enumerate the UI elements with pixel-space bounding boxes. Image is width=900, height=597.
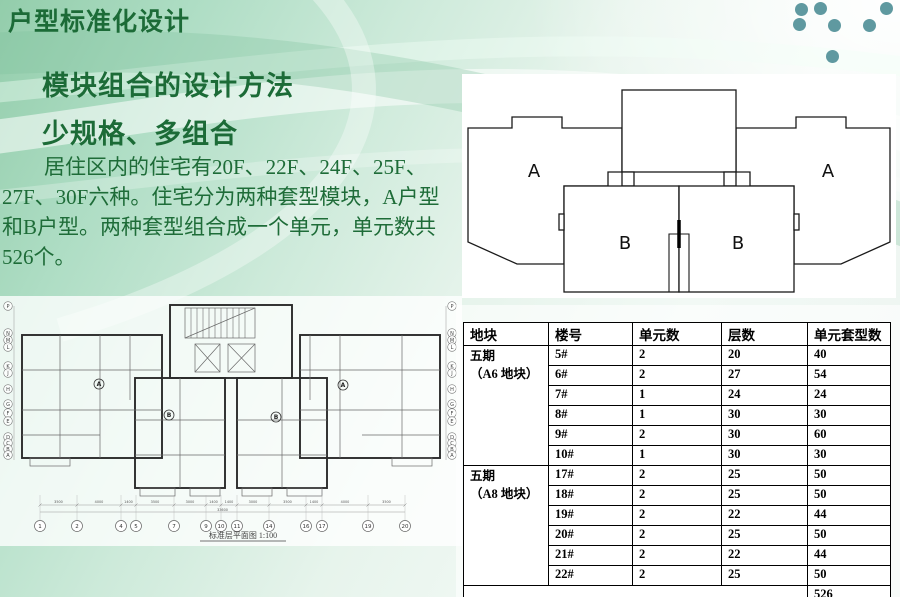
table-cell: 24 xyxy=(722,386,808,406)
grid-axis-letter: E xyxy=(450,419,453,425)
table-header-cell: 单元套型数 xyxy=(808,323,891,346)
grid-axis-number: 1 xyxy=(38,524,42,530)
dimension-lines: 3500400014003500300014001400300035001400… xyxy=(39,500,407,512)
table-cell: 18# xyxy=(549,486,633,506)
dimension-label: 1400 xyxy=(225,500,234,504)
units-table: 地块楼号单元数层数单元套型数 五期（A6 地块）5#220406#227547#… xyxy=(463,322,891,597)
table-cell: 44 xyxy=(808,546,891,566)
table-cell: 50 xyxy=(808,466,891,486)
page-title: 户型标准化设计 xyxy=(8,2,190,38)
dimension-label: 3000 xyxy=(186,500,195,504)
table-cell: 50 xyxy=(808,526,891,546)
table-cell: 21# xyxy=(549,546,633,566)
grid-axis-letter: G xyxy=(6,402,10,408)
total-row-empty-cell xyxy=(464,586,808,597)
dot-icon xyxy=(828,19,841,32)
unit-marker-label: A xyxy=(97,381,102,388)
core-block-outline xyxy=(622,90,736,172)
dimension-label: 1400 xyxy=(124,500,133,504)
dimension-label: 3500 xyxy=(151,500,160,504)
subtitle-slogan: 少规格、多组合 xyxy=(42,112,238,151)
table-cell: 2 xyxy=(633,426,722,446)
building-outline-panel: A A B B xyxy=(462,74,896,298)
table-cell: 50 xyxy=(808,486,891,506)
grid-axis-letter: A xyxy=(6,453,10,459)
dimension-label: 4000 xyxy=(341,500,350,504)
plan-core xyxy=(170,305,292,378)
grid-axis-letter: J xyxy=(6,371,8,377)
dimension-label: 3500 xyxy=(382,500,391,504)
grid-axis-letter: H xyxy=(6,387,10,393)
units-table-head-row: 地块楼号单元数层数单元套型数 xyxy=(464,323,891,346)
table-cell: 6# xyxy=(549,366,633,386)
stair-hatch xyxy=(191,308,245,338)
building-outline-diagram: A A B B xyxy=(462,74,896,298)
core-foot-right xyxy=(724,172,736,186)
grid-axis-letter: H xyxy=(450,387,454,393)
dimension-label: 3500 xyxy=(54,500,63,504)
table-cell: 30 xyxy=(808,406,891,426)
dot-icon xyxy=(863,19,876,32)
grid-axis-letter: G xyxy=(450,402,454,408)
table-cell: 40 xyxy=(808,346,891,366)
unit-label-a-right: A xyxy=(822,161,835,182)
grid-axis-number: 19 xyxy=(365,524,372,530)
table-cell: 22# xyxy=(549,566,633,586)
table-row: 五期（A6 地块）5#22040 xyxy=(464,346,891,366)
grid-axis-letter: E xyxy=(6,419,9,425)
grid-axis-number: 9 xyxy=(204,524,208,530)
dimension-label: 1400 xyxy=(209,500,218,504)
grid-axis-numbers: 12457910111416171920 xyxy=(35,495,411,532)
table-cell: 10# xyxy=(549,446,633,466)
table-cell: 1 xyxy=(633,406,722,426)
plan-left-wing xyxy=(22,335,162,458)
table-cell: 25 xyxy=(722,526,808,546)
table-cell: 1 xyxy=(633,446,722,466)
table-header-cell: 地块 xyxy=(464,323,549,346)
grid-axis-number: 4 xyxy=(119,524,123,530)
grid-axis-letters: PNMLKJHGFEDCBAPNMLKJHGFEDCBA xyxy=(4,302,457,460)
table-cell: 50 xyxy=(808,566,891,586)
grid-axis-number: 11 xyxy=(234,524,241,530)
table-cell: 1 xyxy=(633,386,722,406)
dot-icon xyxy=(880,2,893,15)
plan-right-wing xyxy=(300,335,440,458)
unit-marker-label: A xyxy=(341,382,346,389)
floorplan-drawing: ABBA 35004000140035003000140014003000350… xyxy=(0,300,462,545)
grid-axis-letter: F xyxy=(451,411,454,417)
grid-axis-number: 10 xyxy=(218,524,225,530)
table-total-row: 526 xyxy=(464,586,891,597)
table-cell: 22 xyxy=(722,546,808,566)
unit-b-right-notch xyxy=(794,214,799,230)
total-units-cell: 526 xyxy=(808,586,891,597)
table-cell: 30 xyxy=(722,426,808,446)
grid-axis-number: 20 xyxy=(402,524,409,530)
grid-axis-number: 5 xyxy=(134,524,138,530)
core-foot-left xyxy=(622,172,634,186)
grid-axis-letter: J xyxy=(450,371,452,377)
table-cell: 24 xyxy=(808,386,891,406)
table-cell: 2 xyxy=(633,346,722,366)
table-cell: 19# xyxy=(549,506,633,526)
table-cell: 2 xyxy=(633,506,722,526)
table-cell: 2 xyxy=(633,466,722,486)
table-cell: 25 xyxy=(722,566,808,586)
grid-axis-letter: P xyxy=(450,304,453,310)
table-cell: 20 xyxy=(722,346,808,366)
grid-axis-letter: A xyxy=(450,453,454,459)
table-cell: 30 xyxy=(808,446,891,466)
table-cell: 27 xyxy=(722,366,808,386)
dot-icon xyxy=(814,2,827,15)
dimension-label: 3500 xyxy=(283,500,292,504)
dimension-label: 4000 xyxy=(95,500,104,504)
unit-b-left-notch xyxy=(559,214,564,230)
total-dimension-label: 33600 xyxy=(217,508,228,512)
dot-icon xyxy=(826,50,839,63)
table-cell: 60 xyxy=(808,426,891,446)
unit-label-b-left: B xyxy=(619,233,631,254)
grid-axis-number: 2 xyxy=(75,524,79,530)
grid-axis-number: 7 xyxy=(172,524,176,530)
table-header-cell: 单元数 xyxy=(633,323,722,346)
table-cell: 9# xyxy=(549,426,633,446)
dimension-label: 1400 xyxy=(310,500,319,504)
floorplan-caption: 标准层平面图 1:100 xyxy=(209,530,277,540)
block-label-cell: 五期（A8 地块） xyxy=(464,466,549,586)
table-cell: 25 xyxy=(722,486,808,506)
table-cell: 7# xyxy=(549,386,633,406)
table-cell: 2 xyxy=(633,546,722,566)
table-cell: 25 xyxy=(722,466,808,486)
table-cell: 8# xyxy=(549,406,633,426)
table-cell: 20# xyxy=(549,526,633,546)
table-header-cell: 楼号 xyxy=(549,323,633,346)
grid-axis-letter: P xyxy=(6,304,9,310)
grid-axis-letter: F xyxy=(7,411,10,417)
table-header-cell: 层数 xyxy=(722,323,808,346)
table-cell: 22 xyxy=(722,506,808,526)
table-cell: 44 xyxy=(808,506,891,526)
unit-marker-label: B xyxy=(167,412,172,419)
unit-label-a-left: A xyxy=(528,161,541,182)
grid-axis-letter: L xyxy=(451,345,454,351)
table-cell: 2 xyxy=(633,366,722,386)
table-cell: 2 xyxy=(633,566,722,586)
dot-icon xyxy=(793,18,806,31)
table-cell: 54 xyxy=(808,366,891,386)
block-label-cell: 五期（A6 地块） xyxy=(464,346,549,466)
table-cell: 5# xyxy=(549,346,633,366)
dot-icon xyxy=(795,3,808,16)
subtitle-method: 模块组合的设计方法 xyxy=(42,64,294,103)
unit-marker-label: B xyxy=(274,414,279,421)
grid-axis-number: 16 xyxy=(303,524,310,530)
table-cell: 17# xyxy=(549,466,633,486)
table-row: 五期（A8 地块）17#22550 xyxy=(464,466,891,486)
grid-axis-letter: L xyxy=(7,345,10,351)
table-cell: 30 xyxy=(722,406,808,426)
table-cell: 2 xyxy=(633,486,722,506)
table-cell: 30 xyxy=(722,446,808,466)
grid-axis-number: 17 xyxy=(319,524,326,530)
body-paragraph: 居住区内的住宅有20F、22F、24F、25F、27F、30F六种。住宅分为两种… xyxy=(2,152,460,272)
table-cell: 2 xyxy=(633,526,722,546)
unit-label-b-right: B xyxy=(732,233,744,254)
dimension-label: 3000 xyxy=(249,500,258,504)
grid-axis-number: 14 xyxy=(266,524,273,530)
slide-background: 户型标准化设计 模块组合的设计方法 少规格、多组合 居住区内的住宅有20F、22… xyxy=(0,0,900,597)
